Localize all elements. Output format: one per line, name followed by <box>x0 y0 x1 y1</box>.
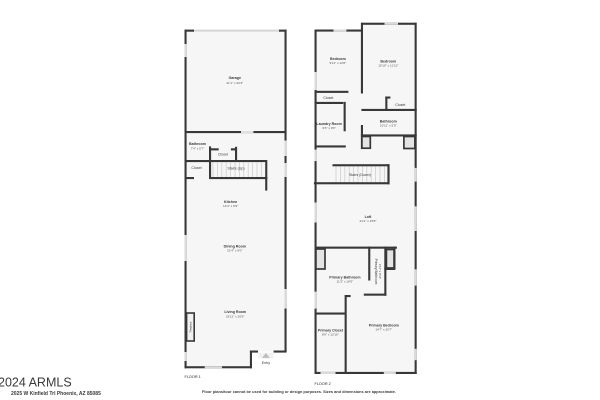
svg-text:14'4" x 6'9": 14'4" x 6'9" <box>223 204 238 208</box>
svg-text:Stairs (Down): Stairs (Down) <box>349 173 371 177</box>
svg-text:23'11" x 20'6": 23'11" x 20'6" <box>226 314 244 318</box>
svg-text:Fireplace: Fireplace <box>189 321 193 332</box>
svg-text:Entry: Entry <box>262 361 271 365</box>
svg-text:Garage: Garage <box>229 76 241 80</box>
svg-text:FLOOR 2: FLOOR 2 <box>315 382 331 386</box>
svg-text:21'1" x 15'8": 21'1" x 15'8" <box>360 219 377 223</box>
svg-text:Closet: Closet <box>395 103 405 107</box>
svg-text:Primary Bathroom: Primary Bathroom <box>374 259 378 285</box>
svg-text:Stairs (Up): Stairs (Up) <box>227 167 244 171</box>
svg-text:8'6" x 12'10": 8'6" x 12'10" <box>322 333 339 337</box>
svg-text:10'11" x 5'0": 10'11" x 5'0" <box>380 124 397 128</box>
svg-text:10'10" x 11'10": 10'10" x 11'10" <box>378 64 398 68</box>
svg-text:9'11" x 12'8": 9'11" x 12'8" <box>330 61 347 65</box>
svg-text:2024 ARMLS: 2024 ARMLS <box>0 376 72 390</box>
svg-text:FLOOR 1: FLOOR 1 <box>185 375 201 379</box>
svg-text:Closet: Closet <box>191 166 201 170</box>
svg-text:6'3" x 9'6": 6'3" x 9'6" <box>322 126 336 130</box>
svg-text:3'11" x 9'11": 3'11" x 9'11" <box>378 264 382 279</box>
svg-text:Closet: Closet <box>323 96 333 100</box>
svg-text:11'3" x 10'0": 11'3" x 10'0" <box>337 280 354 284</box>
svg-text:14'7" x 20'7": 14'7" x 20'7" <box>375 328 392 332</box>
svg-text:Closet: Closet <box>218 152 228 156</box>
svg-text:Floor plans/tour cannot be use: Floor plans/tour cannot be used for buil… <box>202 389 396 394</box>
svg-text:2025 W Kinfield Trl Phoenix, A: 2025 W Kinfield Trl Phoenix, AZ 85085 <box>11 391 101 397</box>
svg-text:7'4" x 5'7": 7'4" x 5'7" <box>191 146 205 150</box>
svg-text:21'1" x 20'3": 21'1" x 20'3" <box>226 81 243 85</box>
svg-text:21'4" x 9'0": 21'4" x 9'0" <box>227 249 242 253</box>
